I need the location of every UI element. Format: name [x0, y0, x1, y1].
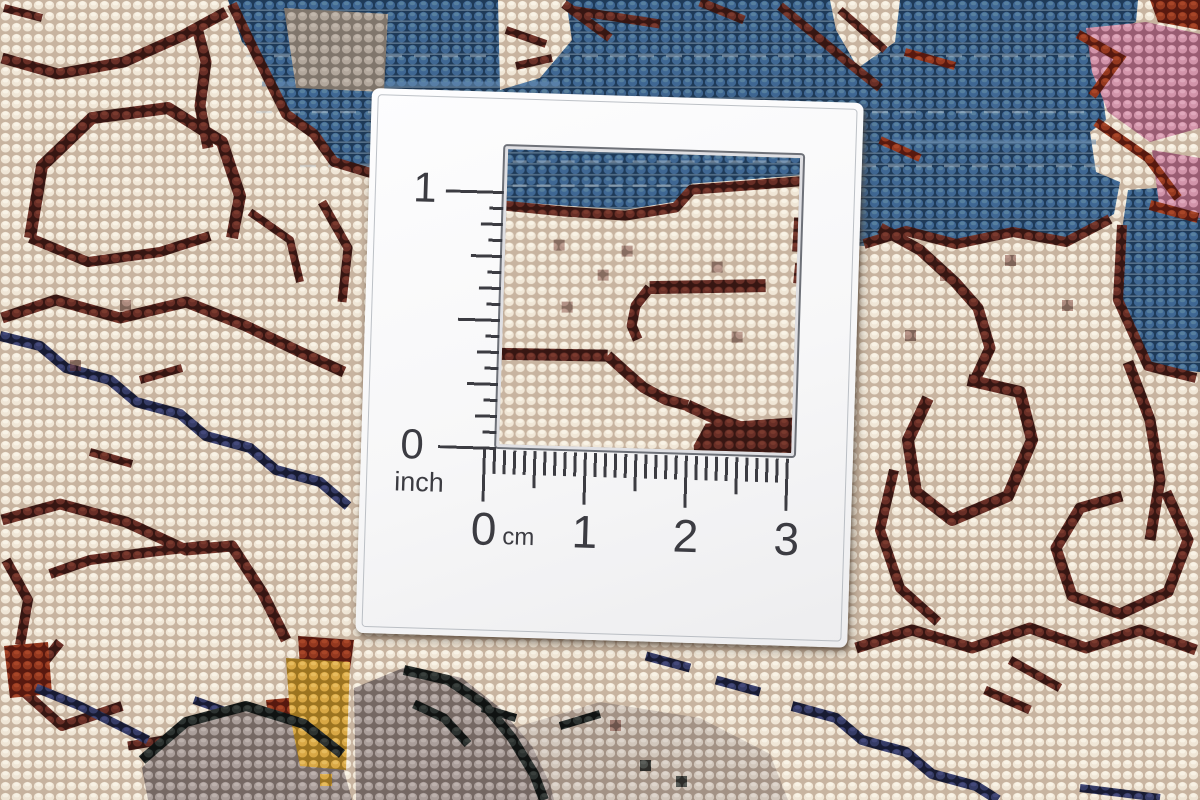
cm-ruler-label-3: 3: [773, 515, 800, 562]
inch-ruler-unit-label: inch: [394, 468, 444, 497]
cm-ruler-cm-ticks: [481, 450, 788, 511]
measuring-card: 1 0 inch 0 cm 1 2 3: [355, 88, 863, 648]
inch-ruler: [438, 189, 504, 450]
cm-ruler: [481, 450, 788, 511]
cm-ruler-label-1: 1: [571, 508, 598, 555]
photo-stage: 1 0 inch 0 cm 1 2 3: [0, 0, 1200, 800]
inch-ruler-label-0: 0: [400, 423, 425, 466]
cutout-weave: [496, 146, 803, 456]
cm-ruler-label-0: 0: [470, 505, 497, 552]
cm-ruler-unit-label: cm: [502, 525, 535, 550]
inch-ruler-unit-ticks: [438, 189, 504, 450]
card-cutout-window: [496, 146, 803, 456]
cm-ruler-label-2: 2: [672, 512, 699, 559]
inch-ruler-label-1: 1: [413, 166, 438, 209]
